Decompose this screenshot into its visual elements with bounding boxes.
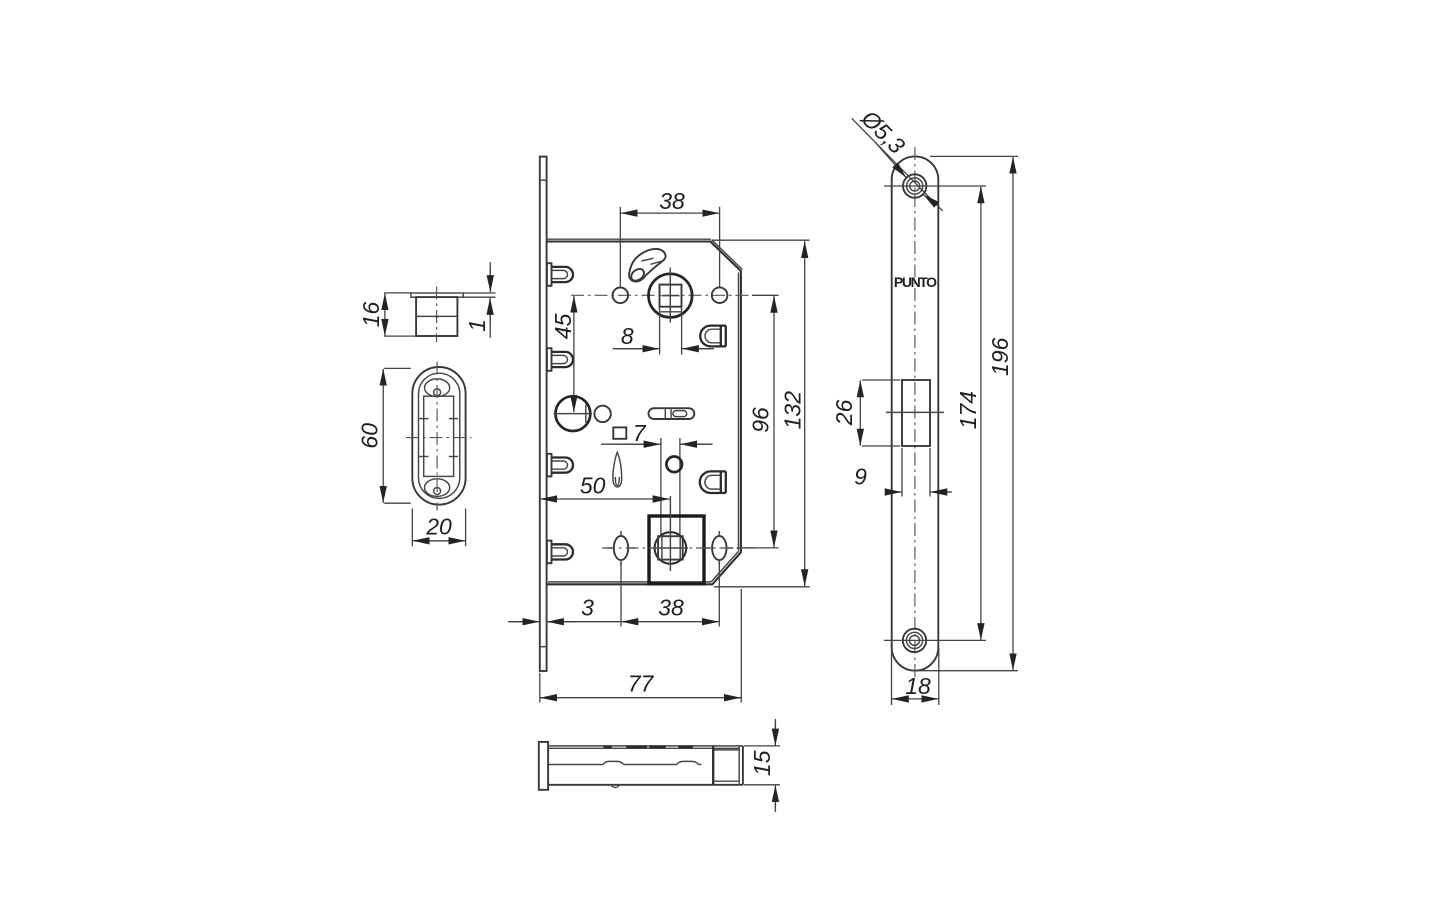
svg-text:PUNTO: PUNTO [894,274,937,290]
svg-text:3: 3 [581,595,594,621]
svg-text:9: 9 [854,464,867,490]
svg-text:1: 1 [464,319,490,332]
svg-text:196: 196 [987,337,1013,376]
svg-text:96: 96 [747,407,773,433]
svg-text:18: 18 [905,673,931,699]
svg-text:38: 38 [659,188,685,214]
svg-text:77: 77 [628,671,655,697]
svg-text:8: 8 [621,323,634,349]
svg-text:15: 15 [749,750,775,776]
svg-text:60: 60 [357,423,383,449]
svg-text:26: 26 [831,399,857,426]
svg-text:132: 132 [779,391,805,430]
svg-text:50: 50 [580,473,606,499]
svg-text:7: 7 [633,420,647,446]
svg-text:174: 174 [955,391,981,429]
svg-text:45: 45 [550,313,576,339]
svg-text:16: 16 [358,302,384,328]
svg-text:20: 20 [425,514,452,540]
svg-text:38: 38 [658,595,684,621]
